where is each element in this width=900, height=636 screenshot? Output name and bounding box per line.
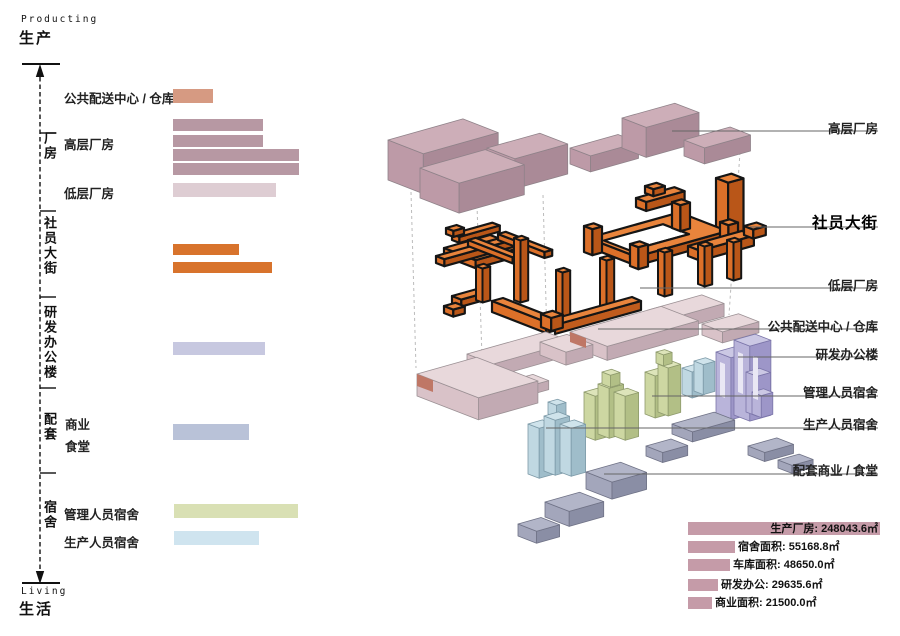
bar-highrise-1	[173, 119, 263, 131]
stat-bar-production: 生产厂房: 248043.6㎡	[688, 522, 880, 535]
group-label-rd-office: 研发办公楼	[42, 305, 56, 380]
towers-and-podium-blocks	[518, 334, 813, 543]
row-label-worker-dorm: 生产人员宿舍	[64, 532, 139, 551]
stat-bar-business	[688, 597, 712, 609]
producting-label-en: Producting	[21, 14, 98, 25]
stat-bar-garage	[688, 559, 730, 571]
bar-street-1	[173, 244, 239, 255]
row-label-canteen: 食堂	[65, 436, 90, 455]
callout-rd-office: 研发办公楼	[815, 344, 878, 363]
callout-worker-dorm: 生产人员宿舍	[803, 414, 878, 433]
living-label-en: Living	[21, 586, 67, 597]
row-label-lowrise: 低层厂房	[64, 183, 114, 202]
bar-lowrise	[173, 183, 276, 197]
row-label-highrise: 高层厂房	[64, 134, 114, 153]
stat-text-business: 商业面积: 21500.0㎡	[715, 597, 816, 609]
bar-manager-dorm	[174, 504, 298, 518]
group-label-street: 社员大街	[42, 216, 56, 276]
group-label-amenity: 配套	[42, 412, 56, 442]
callout-lowrise: 低层厂房	[828, 275, 878, 294]
bar-street-2	[173, 262, 272, 273]
bar-worker-dorm	[174, 531, 259, 545]
group-label-factory: 厂房	[42, 131, 56, 161]
arrow-up-icon	[36, 64, 44, 77]
living-label-zh: 生活	[19, 598, 53, 619]
callout-amenity: 配套商业 / 食堂	[793, 460, 878, 479]
stat-text-dorm: 宿舍面积: 55168.8㎡	[738, 541, 839, 553]
stat-text-rd: 研发办公: 29635.6㎡	[721, 579, 822, 591]
stat-bar-dorm	[688, 541, 735, 553]
bar-highrise-2	[173, 135, 263, 147]
page: Producting 生产 Living 生活 厂房 社员大街 研发办公楼 配套…	[0, 0, 900, 636]
stat-text-production: 生产厂房: 248043.6㎡	[770, 523, 878, 535]
callout-highrise: 高层厂房	[828, 118, 878, 137]
callout-street: 社员大街	[812, 211, 878, 233]
callout-distribution: 公共配送中心 / 仓库	[768, 316, 878, 335]
producting-label-zh: 生产	[19, 27, 53, 48]
stat-bar-rd	[688, 579, 718, 591]
bar-highrise-4	[173, 163, 299, 175]
bar-amenity	[173, 424, 249, 440]
stat-text-garage: 车库面积: 48650.0㎡	[733, 559, 834, 571]
row-label-manager-dorm: 管理人员宿舍	[64, 504, 139, 523]
bar-rd-office	[173, 342, 265, 355]
bar-highrise-3	[173, 149, 299, 161]
callout-manager-dorm: 管理人员宿舍	[803, 382, 878, 401]
bar-distribution	[173, 89, 213, 103]
row-label-business: 商业	[65, 414, 90, 433]
group-label-dormitory: 宿舍	[42, 500, 56, 530]
highrise-factory-blocks	[388, 103, 751, 213]
row-label-distribution: 公共配送中心 / 仓库	[64, 88, 174, 107]
